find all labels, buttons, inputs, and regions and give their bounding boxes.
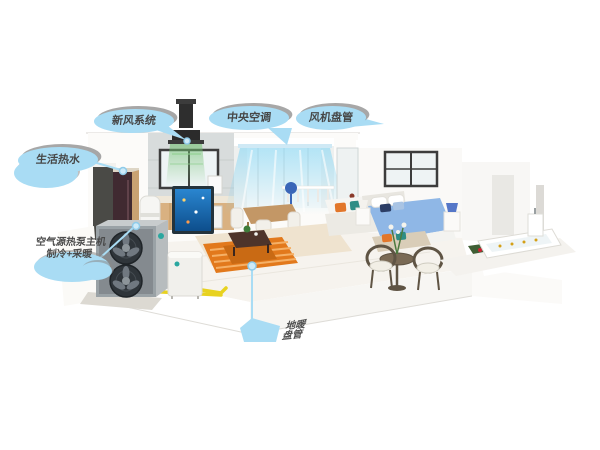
callout-heat-pump-cloud-step <box>80 262 112 280</box>
nightstand <box>444 212 460 231</box>
callout-hot-water-label: 生活热水 <box>35 154 80 166</box>
fan-bottom <box>110 265 142 297</box>
pillow-orange <box>335 202 347 212</box>
callout-heat-pump-line2: 制冷+采暖 <box>18 249 120 261</box>
brand-logo-dot <box>175 262 180 267</box>
house-illustration <box>0 0 600 450</box>
bathroom-sink <box>528 214 543 236</box>
blue-decor <box>285 182 297 194</box>
brand-logo-dot <box>158 233 164 239</box>
callout-heat-pump: 空气源热泵主机 制冷+采暖 <box>18 237 121 261</box>
aquarium <box>172 186 214 234</box>
callout-fresh-air-label: 新风系统 <box>111 115 156 127</box>
callout-central-ac-label: 中央空调 <box>226 112 271 124</box>
fresh-air-glow <box>166 144 206 186</box>
bathroom-door <box>492 175 514 235</box>
dining-chair <box>231 208 243 228</box>
nightstand <box>356 208 370 225</box>
exhaust-chimney <box>179 102 193 128</box>
callout-fan-coil-label: 风机盘管 <box>308 112 353 124</box>
callout-heat-pump-line1: 空气源热泵主机 <box>20 237 122 249</box>
table-plant <box>244 226 251 233</box>
blue-lamp <box>446 203 458 212</box>
hydronic-module <box>168 252 202 299</box>
house-cutaway-diagram: 新风系统 中央空调 风机盘管 生活热水 空气源热泵主机 制冷+采暖 地暖 盘管 <box>0 0 600 450</box>
